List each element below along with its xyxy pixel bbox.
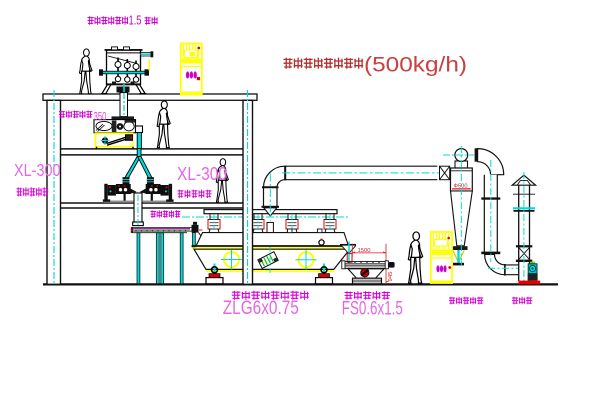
svg-text:350: 350: [94, 112, 107, 124]
svg-text:945: 945: [388, 272, 394, 282]
svg-text:XL-300: XL-300: [14, 160, 61, 180]
svg-text:Φ500: Φ500: [454, 184, 468, 190]
svg-text:1.5: 1.5: [129, 14, 142, 28]
svg-text:1500: 1500: [358, 248, 371, 254]
svg-text:FS0.6x1.5: FS0.6x1.5: [342, 299, 403, 320]
svg-text:ZLG6x0.75: ZLG6x0.75: [223, 298, 299, 319]
svg-text:XL-300: XL-300: [177, 164, 227, 184]
svg-text:(500kg/h): (500kg/h): [364, 54, 467, 77]
